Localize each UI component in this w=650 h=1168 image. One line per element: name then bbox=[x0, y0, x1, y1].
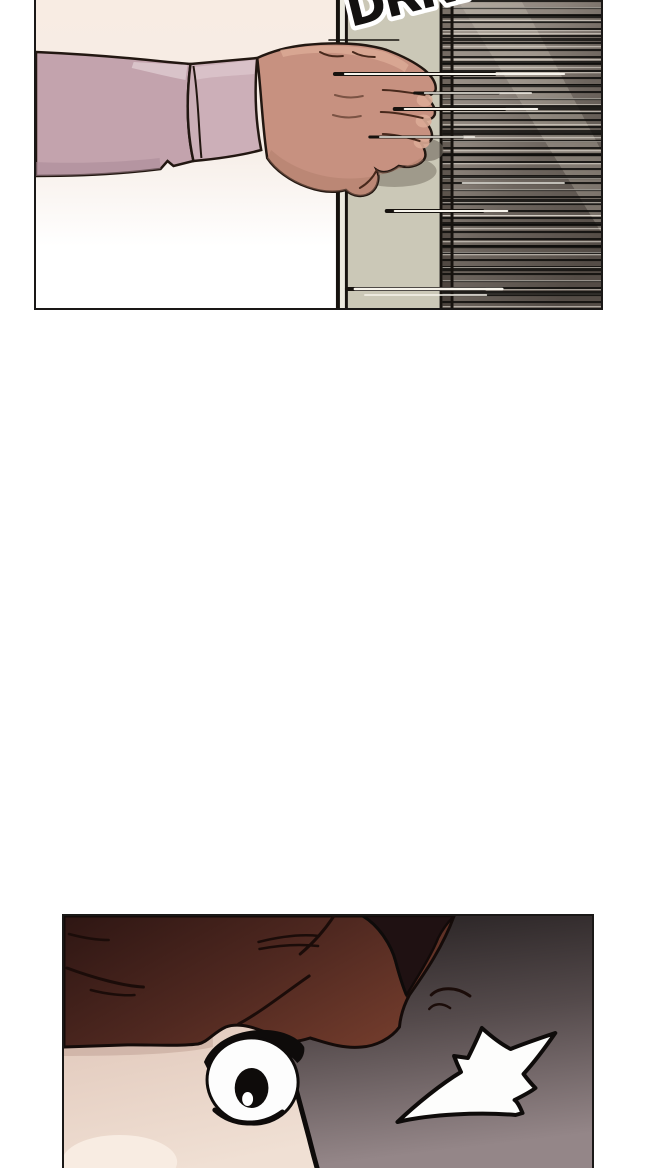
comic-page: DRRR bbox=[0, 0, 650, 1168]
comic-panel-door: DRRR bbox=[34, 0, 603, 310]
eye-highlight bbox=[242, 1092, 253, 1106]
comic-panel-eye bbox=[62, 914, 594, 1168]
speed-lines bbox=[443, 0, 601, 308]
sleeve bbox=[36, 52, 261, 176]
eye-panel-art bbox=[64, 916, 592, 1168]
door-panel-art: DRRR bbox=[36, 0, 601, 308]
